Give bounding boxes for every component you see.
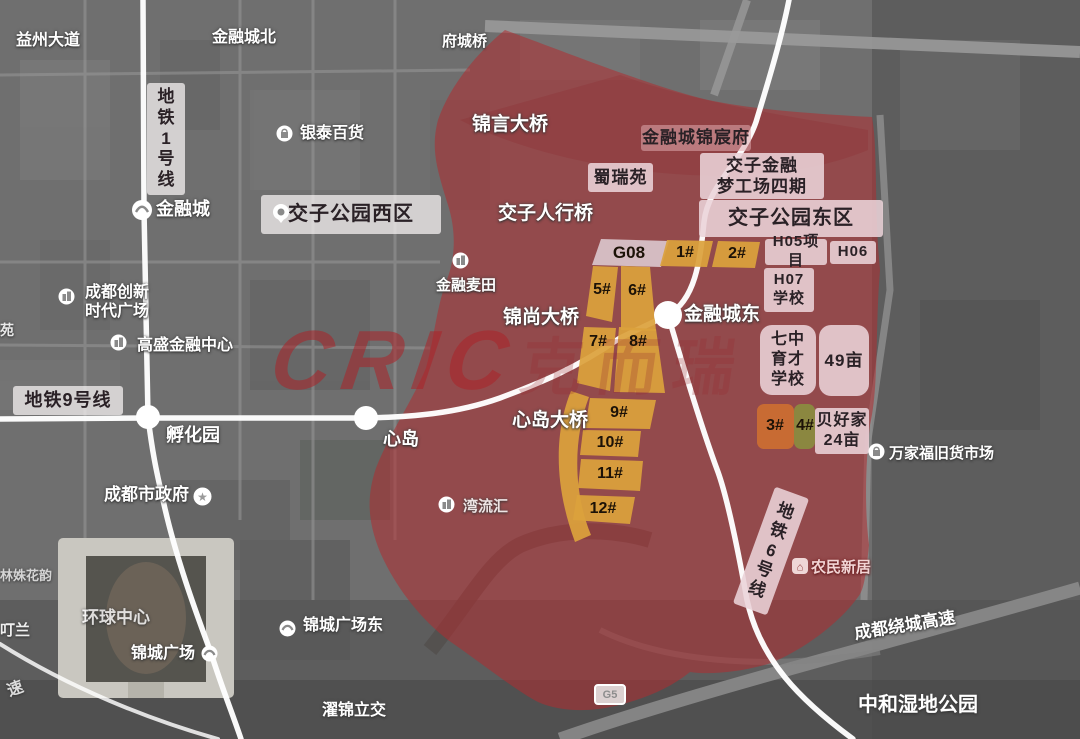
parcel-10-label: 10# (597, 434, 624, 452)
fucheng-bridge-label: 府城桥 (442, 33, 487, 51)
yizhou-avenue-label: 益州大道 (16, 32, 80, 51)
jinyan-bridge-label: 锦言大桥 (472, 114, 548, 136)
fuhuayuan-station-dot (136, 405, 160, 429)
h05-project-box: H05项目 (765, 239, 827, 265)
jiaozi-dream-works-phase4-box: 交子金融梦工场四期 (700, 153, 824, 199)
parcel-3-label: 3# (766, 417, 784, 435)
zhonghe-wetland-park-label: 中和湿地公园 (858, 694, 978, 718)
xindao-station-dot (354, 406, 378, 430)
jinshang-bridge-label: 锦尚大桥 (503, 307, 579, 329)
parcel-g08-label: G08 (613, 243, 645, 263)
financial-city-east-station-label: 金融城东 (684, 304, 760, 326)
zhuojin-interchange-label: 濯锦立交 (322, 702, 386, 721)
edge-label-yuan: 苑 (0, 322, 14, 339)
wanliuhui-label: 湾流汇 (463, 498, 508, 516)
shuruiyuan-box: 蜀瑞苑 (588, 163, 653, 192)
mu49-box: 49亩 (819, 325, 869, 396)
global-center-label: 环球中心 (82, 608, 150, 628)
h07-school-box: H07学校 (764, 268, 814, 312)
financial-wheat-field-label: 金融麦田 (436, 277, 496, 295)
chengdu-innovation-times-plaza-label: 成都创新时代广场 (85, 284, 149, 322)
parcel-1-label: 1# (676, 244, 694, 262)
chengdu-municipal-government-label: 成都市政府 (104, 485, 189, 505)
financial-city-station-label: 金融城 (156, 199, 210, 220)
map-canvas: CRIC 克而瑞 益州大道金融城北府城桥银泰百货金融城成都创新时代广场高盛金融中… (0, 0, 1080, 739)
jincheng-square-station-label: 锦城广场 (131, 645, 195, 664)
edge-label-lan: 叮兰 (0, 622, 30, 640)
parcel-2-label: 2# (728, 245, 746, 263)
parcel-8-label: 8# (629, 333, 647, 351)
beihaojia-24mu-box: 贝好家24亩 (815, 408, 869, 454)
jiaozi-footbridge-label: 交子人行桥 (498, 203, 593, 225)
edge-label-flower-garden: 林姝花韵 (0, 568, 52, 583)
g5-highway-shield: G5 (594, 684, 626, 705)
parcel-5-label: 5# (593, 281, 611, 299)
parcel-4-label: 4# (796, 417, 814, 435)
yintai-department-store-label: 银泰百货 (300, 125, 364, 144)
financial-city-east-station-dot (654, 301, 682, 329)
h06-box: H06 (830, 241, 876, 264)
parcel-9-label: 9# (610, 404, 628, 422)
parcel-7-label: 7# (589, 333, 607, 351)
qizhong-yucai-school-box: 七中育才学校 (760, 325, 816, 395)
financial-city-north-label: 金融城北 (212, 29, 276, 48)
metro-line-1-label: 地铁1号线 (147, 83, 185, 195)
parcel-12-label: 12# (590, 500, 617, 518)
wanjiafu-secondhand-market-label: 万家福旧货市场 (889, 445, 994, 463)
metro-line-9-label: 地铁9号线 (13, 386, 123, 415)
xindao-bridge-label: 心岛大桥 (512, 410, 588, 432)
xindao-station-label: 心岛 (383, 429, 419, 450)
fuhuayuan-station-label: 孵化园 (166, 425, 220, 446)
financial-city-jinchenfu-box: 金融城锦宸府 (641, 125, 751, 151)
svg-text:★: ★ (197, 490, 208, 504)
financial-city-station-dot (132, 200, 152, 220)
parcel-11-label: 11# (597, 465, 623, 483)
parcel-6-label: 6# (628, 282, 646, 300)
svg-text:⌂: ⌂ (797, 562, 804, 574)
goldman-financial-center-label: 高盛金融中心 (137, 337, 233, 356)
jincheng-square-east-station-label: 锦城广场东 (303, 617, 383, 636)
jiaozi-park-east-box: 交子公园东区 (699, 200, 883, 237)
farmers-new-homes-label: 农民新居 (811, 559, 871, 577)
